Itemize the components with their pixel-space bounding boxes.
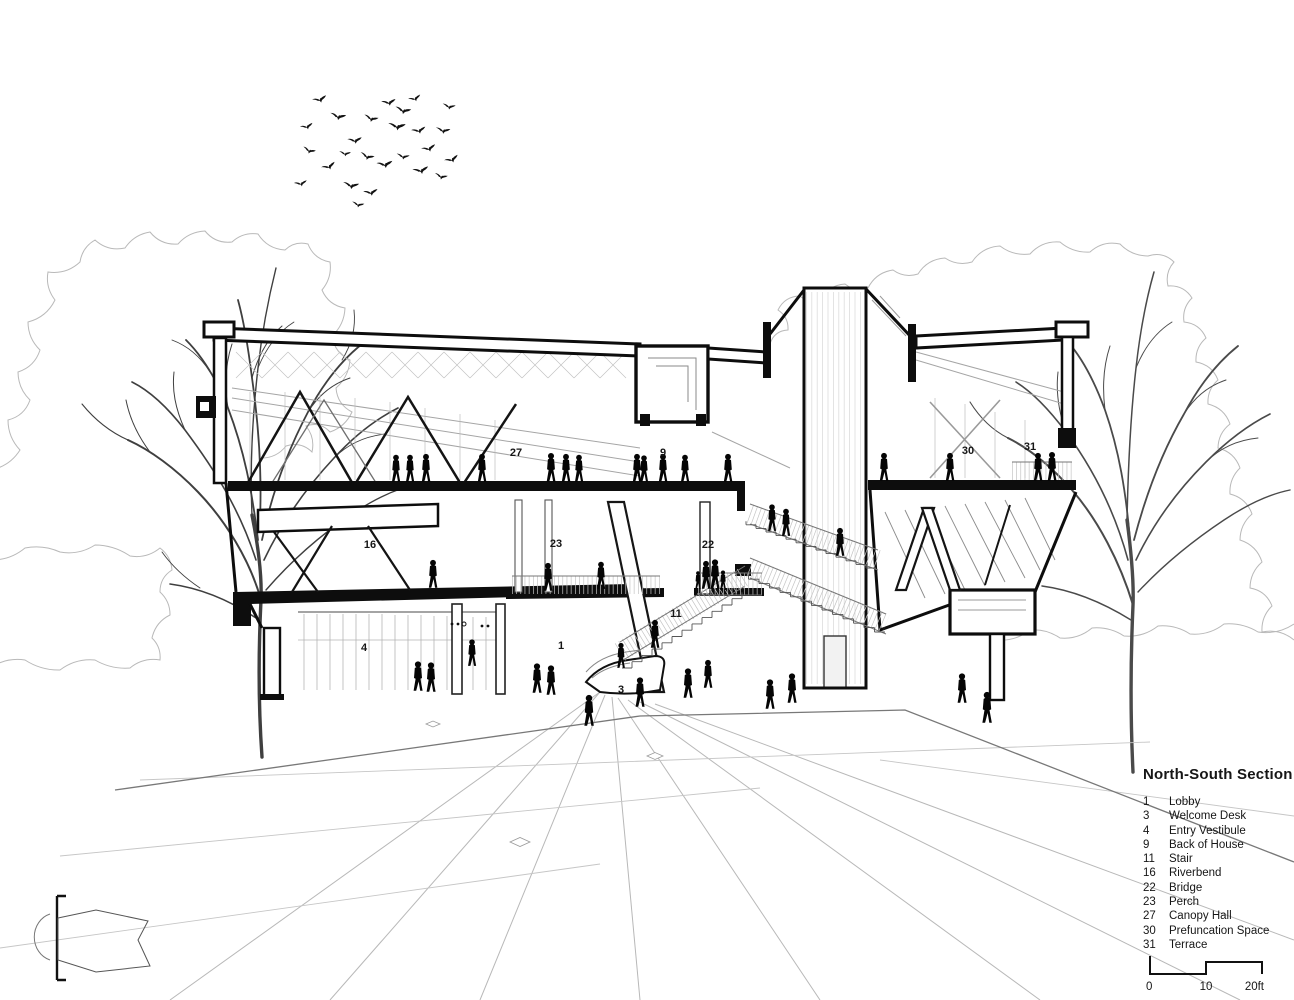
person-silhouette bbox=[681, 455, 689, 482]
person-silhouette bbox=[768, 504, 776, 530]
bird-silhouette bbox=[388, 123, 406, 131]
space-label-23: 23 bbox=[550, 538, 562, 550]
person-silhouette bbox=[946, 453, 955, 481]
person-silhouette bbox=[422, 454, 431, 482]
legend-item: 11Stair bbox=[1143, 852, 1293, 866]
person-silhouette bbox=[406, 455, 414, 482]
space-label-9: 9 bbox=[660, 447, 666, 459]
person-silhouette bbox=[651, 620, 660, 648]
bird-silhouette bbox=[411, 127, 426, 136]
legend-item: 4Entry Vestibule bbox=[1143, 824, 1293, 838]
bird-silhouette bbox=[396, 153, 410, 160]
bird-silhouette bbox=[408, 94, 422, 103]
tree-canopy-outlines bbox=[0, 231, 1294, 670]
space-label-11: 11 bbox=[670, 608, 682, 620]
space-label-4: 4 bbox=[361, 642, 368, 654]
person-silhouette bbox=[547, 453, 556, 482]
key-plan bbox=[34, 896, 150, 980]
person-silhouette bbox=[766, 679, 775, 708]
person-silhouette bbox=[533, 663, 542, 692]
legend: North-South Section 1Lobby3Welcome Desk4… bbox=[1143, 766, 1293, 952]
person-silhouette bbox=[633, 454, 642, 482]
person-silhouette bbox=[704, 660, 713, 688]
person-silhouette bbox=[562, 454, 571, 482]
bird-silhouette bbox=[412, 166, 429, 175]
bird-silhouette bbox=[312, 95, 328, 104]
section-drawing: 279303116232211413 0 10 20ft bbox=[0, 0, 1294, 1000]
person-silhouette bbox=[880, 453, 889, 481]
bird-silhouette bbox=[359, 152, 375, 162]
space-label-16: 16 bbox=[364, 539, 376, 551]
legend-item: 31Terrace bbox=[1143, 938, 1293, 952]
scale-end-label: 20ft bbox=[1245, 981, 1265, 993]
bird-silhouette bbox=[376, 161, 393, 169]
legend-title: North-South Section bbox=[1143, 766, 1293, 783]
bird-silhouette bbox=[302, 146, 316, 155]
scale-start-label: 0 bbox=[1146, 981, 1152, 993]
person-silhouette bbox=[1034, 453, 1043, 481]
bird-silhouette bbox=[444, 155, 460, 165]
bird-silhouette bbox=[363, 114, 379, 123]
legend-item: 1Lobby bbox=[1143, 795, 1293, 809]
bird-silhouette bbox=[342, 182, 359, 191]
bird-silhouette bbox=[329, 112, 346, 121]
bird-silhouette bbox=[435, 127, 450, 135]
legend-item: 3Welcome Desk bbox=[1143, 809, 1293, 823]
space-label-3: 3 bbox=[618, 684, 624, 696]
space-label-22: 22 bbox=[702, 539, 714, 551]
bird-silhouette bbox=[351, 201, 364, 208]
person-silhouette bbox=[429, 560, 438, 588]
bird-silhouette bbox=[339, 151, 351, 157]
legend-item: 9Back of House bbox=[1143, 838, 1293, 852]
bird-silhouette bbox=[300, 123, 314, 131]
person-silhouette bbox=[640, 455, 648, 481]
person-silhouette bbox=[575, 455, 583, 482]
legend-item: 22Bridge bbox=[1143, 881, 1293, 895]
bird-silhouette bbox=[294, 180, 308, 187]
person-silhouette bbox=[468, 639, 476, 665]
person-silhouette bbox=[782, 509, 790, 536]
legend-items: 1Lobby3Welcome Desk4Entry Vestibule9Back… bbox=[1143, 795, 1293, 952]
bird-silhouette bbox=[394, 106, 411, 116]
legend-item: 23Perch bbox=[1143, 895, 1293, 909]
bird-silhouette bbox=[381, 99, 396, 107]
person-silhouette bbox=[584, 695, 593, 726]
bird-silhouette bbox=[347, 137, 362, 144]
space-label-27: 27 bbox=[510, 447, 522, 459]
architectural-section-page: 279303116232211413 0 10 20ft North-South… bbox=[0, 0, 1294, 1000]
person-silhouette bbox=[788, 673, 797, 702]
legend-item: 16Riverbend bbox=[1143, 866, 1293, 880]
bird-silhouette bbox=[363, 189, 378, 197]
ground-pavement bbox=[0, 692, 1294, 1000]
person-silhouette bbox=[392, 455, 400, 482]
scale-mid-label: 10 bbox=[1200, 981, 1213, 993]
person-silhouette bbox=[684, 668, 693, 697]
space-label-31: 31 bbox=[1024, 441, 1036, 453]
tree-right bbox=[970, 272, 1290, 772]
person-silhouette bbox=[547, 665, 556, 694]
legend-item: 27Canopy Hall bbox=[1143, 909, 1293, 923]
legend-item: 30Prefuncation Space bbox=[1143, 924, 1293, 938]
person-silhouette bbox=[724, 454, 733, 482]
bird-silhouette bbox=[321, 162, 337, 172]
bird-silhouette bbox=[421, 144, 437, 153]
person-silhouette bbox=[1048, 452, 1057, 481]
scale-bar: 0 10 20ft bbox=[1146, 956, 1265, 993]
bird-flock bbox=[294, 94, 460, 208]
space-label-30: 30 bbox=[962, 445, 974, 457]
stairs-and-railings bbox=[512, 462, 1072, 672]
bird-silhouette bbox=[442, 103, 456, 110]
space-label-1: 1 bbox=[558, 640, 564, 652]
bird-silhouette bbox=[434, 173, 448, 181]
person-silhouette bbox=[958, 673, 967, 702]
